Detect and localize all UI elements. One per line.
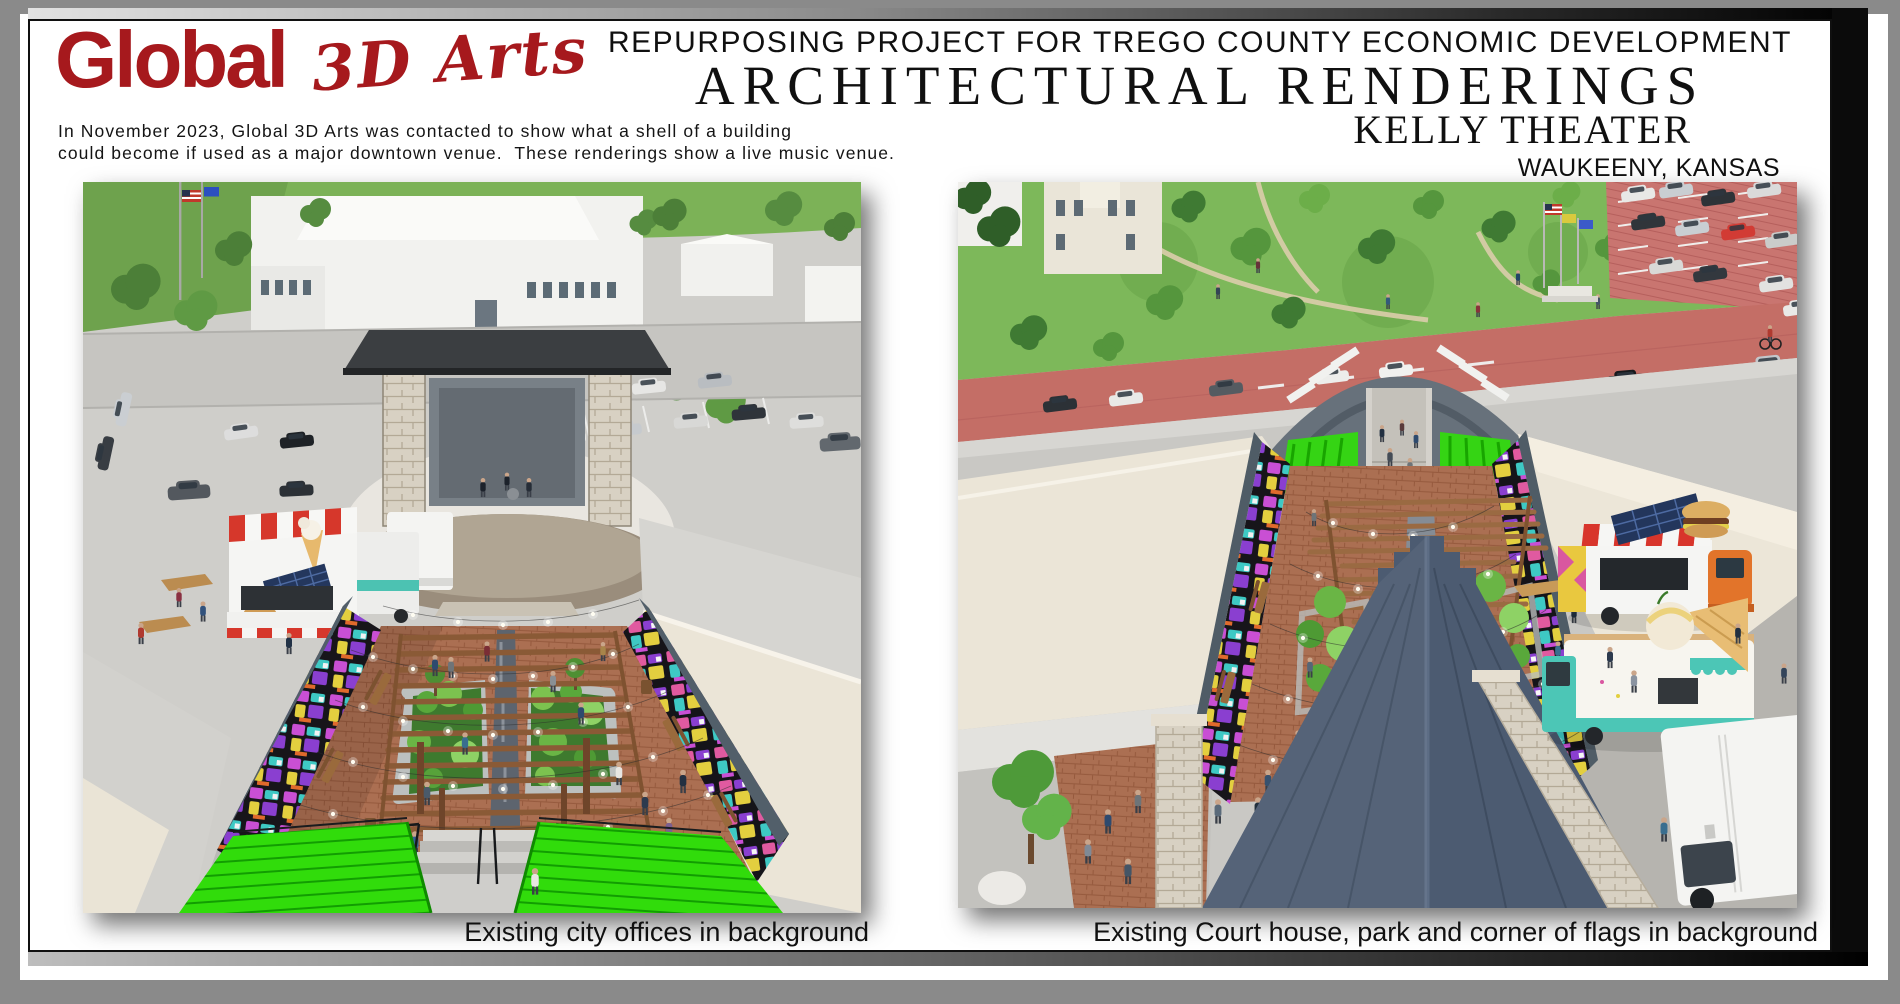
logo-brand-text: Global <box>55 15 286 104</box>
caption-right: Existing Court house, park and corner of… <box>958 917 1818 948</box>
frame-right-edge <box>1832 8 1868 966</box>
frame-bottom-edge <box>28 952 1868 966</box>
venue-name: KELLY THEATER <box>1100 106 1692 153</box>
logo-sub-text: 3D Arts <box>310 13 591 105</box>
stone-pillar-left <box>1156 722 1202 908</box>
left-rendering-illustration <box>83 182 861 913</box>
burger-sculpture <box>1682 501 1730 538</box>
white-box-truck <box>1660 714 1797 908</box>
us-flag <box>1545 204 1562 215</box>
rendering-left-image <box>83 182 861 913</box>
courthouse <box>1044 182 1162 274</box>
venue-location: WAUKEENY, KANSAS <box>1280 154 1780 183</box>
slide-root: Global 3D Arts REPURPOSING PROJECT FOR T… <box>0 0 1900 1004</box>
intro-line2: could become if used as a major downtown… <box>58 143 895 163</box>
state-flag <box>204 187 219 197</box>
stage-canopy <box>343 330 671 372</box>
intro-line1: In November 2023, Global 3D Arts was con… <box>58 121 792 141</box>
intro-paragraph: In November 2023, Global 3D Arts was con… <box>58 120 895 164</box>
logo: Global 3D Arts <box>55 14 589 106</box>
rendering-right-image <box>958 182 1797 908</box>
caption-left: Existing city offices in background <box>83 917 869 948</box>
right-rendering-illustration <box>958 182 1797 908</box>
us-flag <box>182 190 201 202</box>
